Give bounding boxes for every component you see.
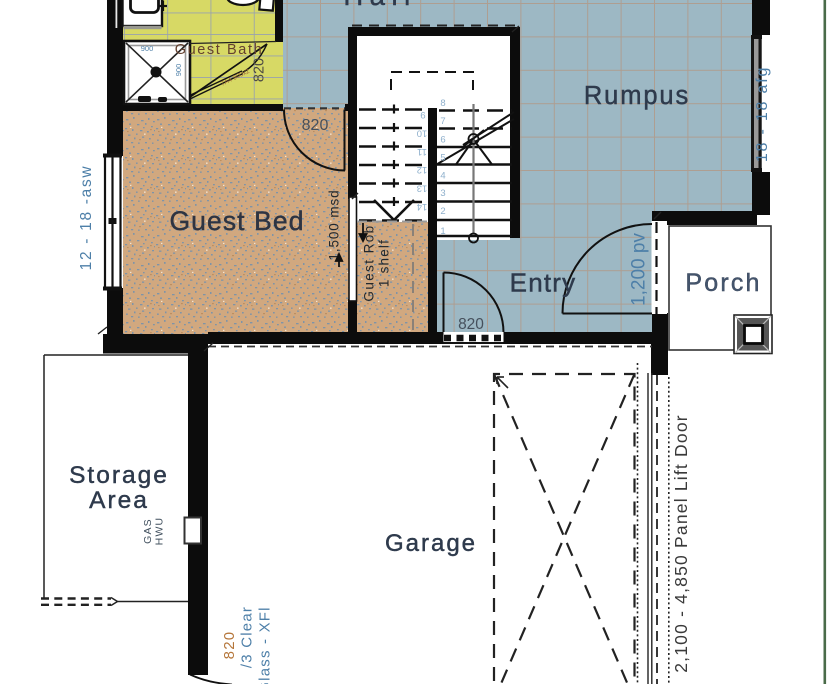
svg-text:Storage: Storage	[69, 462, 169, 489]
svg-text:1,200 pv: 1,200 pv	[629, 233, 650, 306]
svg-text:820: 820	[221, 631, 238, 660]
svg-text:Guest Bed: Guest Bed	[169, 206, 304, 236]
svg-text:1: 1	[440, 226, 445, 237]
svg-text:2: 2	[440, 206, 445, 217]
svg-text:Guest Bath: Guest Bath	[175, 42, 264, 58]
svg-text:Garage: Garage	[385, 530, 477, 557]
svg-text:1,500 msd: 1,500 msd	[327, 189, 342, 260]
svg-text:5: 5	[440, 153, 445, 164]
svg-text:Porch: Porch	[685, 269, 761, 297]
svg-text:4: 4	[440, 171, 445, 182]
svg-text:Area: Area	[89, 487, 149, 514]
svg-text:1 shelf: 1 shelf	[377, 239, 392, 287]
svg-text:900: 900	[174, 64, 183, 77]
svg-text:Entry: Entry	[510, 268, 577, 298]
svg-text:8: 8	[440, 98, 445, 109]
svg-text:11: 11	[417, 146, 427, 157]
svg-text:Hall: Hall	[343, 0, 416, 11]
svg-text:GAS: GAS	[142, 518, 154, 544]
svg-text:2,100 - 4,850 Panel Lift Door: 2,100 - 4,850 Panel Lift Door	[671, 414, 691, 673]
svg-text:820: 820	[252, 58, 268, 82]
svg-text:Glass - XFl: Glass - XFl	[257, 606, 274, 684]
svg-text:6: 6	[440, 135, 445, 146]
svg-text:18 - 18 afg: 18 - 18 afg	[754, 66, 771, 162]
svg-text:14: 14	[417, 201, 428, 212]
svg-text:900: 900	[141, 44, 154, 53]
svg-text:12 - 18 -asw: 12 - 18 -asw	[78, 165, 95, 271]
svg-text:10: 10	[417, 128, 428, 139]
svg-text:HWU: HWU	[154, 517, 166, 546]
svg-text:3: 3	[440, 188, 445, 199]
svg-text:12: 12	[417, 164, 428, 175]
svg-text:820: 820	[302, 117, 329, 134]
svg-text:/3 Clear: /3 Clear	[239, 606, 256, 668]
svg-text:Rumpus: Rumpus	[584, 82, 690, 110]
svg-text:7: 7	[440, 116, 445, 127]
svg-text:9: 9	[420, 109, 425, 120]
svg-text:13: 13	[417, 183, 428, 194]
svg-text:820: 820	[458, 316, 484, 333]
